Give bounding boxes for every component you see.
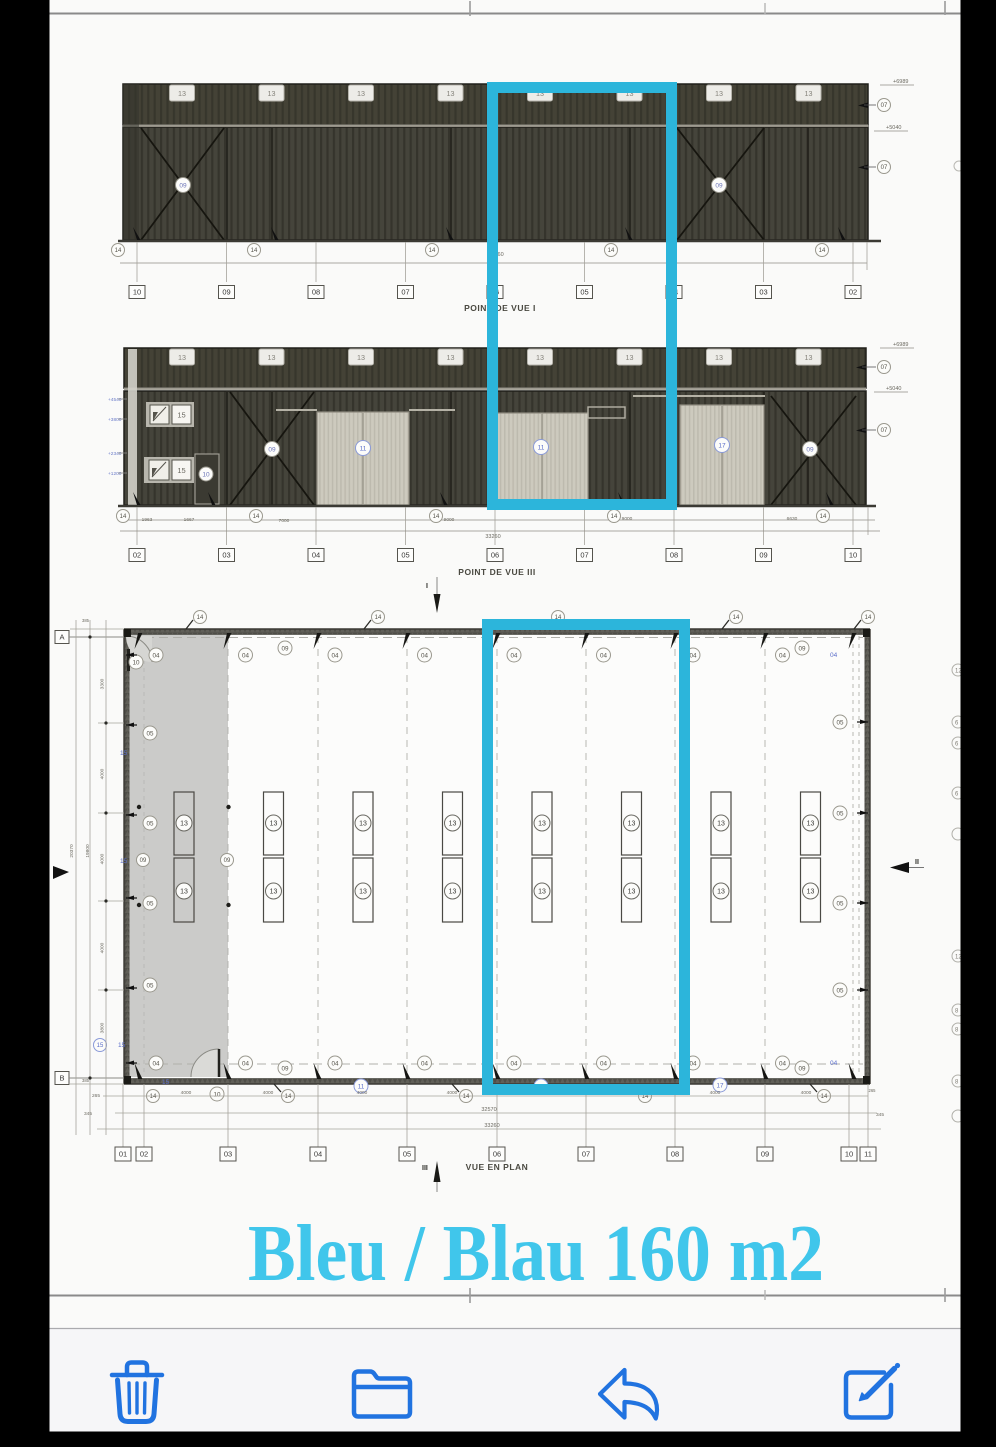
svg-text:10: 10 (132, 659, 140, 666)
svg-text:4000: 4000 (100, 942, 106, 953)
svg-text:13: 13 (270, 821, 278, 828)
svg-text:13: 13 (178, 89, 186, 98)
svg-text:13: 13 (628, 889, 636, 896)
svg-text:+3800: +3800 (108, 417, 122, 423)
svg-text:13: 13 (805, 89, 813, 98)
svg-text:04: 04 (600, 1060, 608, 1067)
svg-text:05: 05 (401, 551, 409, 560)
svg-text:15: 15 (177, 411, 185, 420)
svg-text:13: 13 (626, 353, 634, 362)
svg-text:13: 13 (357, 353, 365, 362)
svg-text:+5040: +5040 (886, 125, 901, 131)
svg-text:09: 09 (281, 1065, 289, 1072)
svg-text:10: 10 (213, 1091, 221, 1098)
svg-text:09: 09 (761, 1150, 769, 1159)
svg-text:13: 13 (180, 889, 188, 896)
svg-text:13: 13 (449, 821, 457, 828)
svg-text:265: 265 (869, 1088, 877, 1093)
svg-text:04: 04 (600, 652, 608, 659)
svg-text:A: A (59, 633, 64, 642)
svg-text:III: III (422, 1165, 428, 1172)
svg-text:02: 02 (140, 1150, 148, 1159)
svg-text:345: 345 (876, 1112, 884, 1118)
svg-text:4000: 4000 (710, 1090, 721, 1096)
svg-text:POINT DE VUE III: POINT DE VUE III (458, 567, 535, 577)
svg-text:02: 02 (133, 551, 141, 560)
svg-text:17: 17 (718, 442, 726, 449)
svg-text:11: 11 (358, 1083, 365, 1090)
svg-text:05: 05 (146, 900, 154, 907)
svg-text:06: 06 (493, 1150, 501, 1159)
svg-text:14: 14 (120, 514, 127, 520)
svg-text:385: 385 (82, 618, 90, 623)
svg-text:13: 13 (447, 353, 455, 362)
svg-text:10: 10 (133, 288, 141, 297)
svg-text:10: 10 (202, 471, 210, 478)
svg-text:13: 13 (807, 821, 815, 828)
svg-text:3300: 3300 (100, 678, 106, 689)
svg-text:+6989: +6989 (893, 79, 908, 85)
svg-text:05: 05 (146, 820, 154, 827)
svg-text:08: 08 (670, 551, 678, 560)
svg-text:13: 13 (178, 353, 186, 362)
svg-text:10: 10 (849, 551, 857, 560)
svg-text:9000: 9000 (622, 516, 633, 522)
svg-text:04: 04 (421, 652, 429, 659)
svg-text:08: 08 (671, 1150, 679, 1159)
svg-text:07: 07 (881, 103, 888, 109)
svg-text:15: 15 (97, 1043, 104, 1049)
svg-text:7000: 7000 (279, 518, 290, 524)
svg-text:14: 14 (197, 615, 204, 621)
svg-text:6630: 6630 (787, 516, 798, 522)
svg-text:13: 13 (538, 821, 546, 828)
svg-text:13: 13 (536, 353, 544, 362)
svg-text:14: 14 (820, 514, 827, 520)
svg-text:04: 04 (314, 1150, 322, 1159)
svg-text:04: 04 (510, 652, 518, 659)
svg-text:04: 04 (830, 652, 838, 659)
svg-text:07: 07 (582, 1150, 590, 1159)
svg-text:13: 13 (717, 821, 725, 828)
svg-text:33260: 33260 (485, 534, 500, 540)
svg-text:09: 09 (715, 182, 723, 189)
svg-text:Bleu / Blau 160 m2: Bleu / Blau 160 m2 (248, 1210, 824, 1298)
svg-text:03: 03 (224, 1150, 232, 1159)
svg-text:05: 05 (836, 719, 844, 726)
svg-text:II: II (915, 859, 919, 866)
svg-text:265: 265 (92, 1093, 100, 1099)
svg-text:14: 14 (865, 615, 872, 621)
svg-text:04: 04 (689, 1060, 697, 1067)
svg-text:09: 09 (806, 446, 814, 453)
svg-text:4000: 4000 (263, 1090, 274, 1096)
svg-text:13: 13 (715, 89, 723, 98)
svg-text:13: 13 (538, 889, 546, 896)
svg-text:33260: 33260 (484, 1123, 499, 1129)
svg-text:13: 13 (268, 89, 276, 98)
svg-text:14: 14 (608, 248, 615, 254)
svg-text:13: 13 (715, 353, 723, 362)
svg-text:05: 05 (146, 730, 154, 737)
svg-text:14: 14 (115, 248, 122, 254)
svg-text:345: 345 (84, 1111, 92, 1117)
svg-text:06: 06 (491, 551, 499, 560)
svg-text:09: 09 (140, 858, 147, 864)
svg-text:4000: 4000 (357, 1090, 368, 1096)
svg-text:13: 13 (270, 889, 278, 896)
svg-text:02: 02 (849, 288, 857, 297)
svg-text:9000: 9000 (444, 517, 455, 523)
svg-text:B: B (59, 1074, 64, 1083)
svg-text:I: I (426, 583, 428, 590)
svg-text:14: 14 (375, 615, 382, 621)
svg-text:14: 14 (253, 514, 260, 520)
svg-text:11: 11 (864, 1150, 872, 1159)
svg-text:20370: 20370 (69, 844, 75, 858)
svg-text:09: 09 (268, 446, 276, 453)
svg-text:+1200: +1200 (108, 471, 122, 477)
svg-text:07: 07 (881, 165, 888, 171)
svg-text:09: 09 (222, 288, 230, 297)
svg-text:04: 04 (152, 652, 160, 659)
svg-text:04: 04 (312, 551, 320, 560)
svg-text:+5040: +5040 (886, 386, 901, 392)
svg-text:05: 05 (836, 900, 844, 907)
svg-text:14: 14 (463, 1094, 470, 1100)
svg-text:05: 05 (836, 810, 844, 817)
svg-text:14: 14 (821, 1094, 828, 1100)
svg-text:09: 09 (281, 645, 289, 652)
svg-text:POINT DE VUE I: POINT DE VUE I (464, 303, 536, 313)
svg-text:15: 15 (120, 750, 128, 757)
svg-text:VUE EN PLAN: VUE EN PLAN (466, 1162, 529, 1172)
svg-text:14: 14 (251, 248, 258, 254)
svg-text:04: 04 (510, 1060, 518, 1067)
svg-text:4000: 4000 (181, 1090, 192, 1096)
svg-text:17: 17 (716, 1082, 724, 1089)
svg-text:14: 14 (611, 514, 618, 520)
svg-text:04: 04 (779, 652, 787, 659)
svg-text:13: 13 (447, 89, 455, 98)
svg-text:08: 08 (312, 288, 320, 297)
svg-text:04: 04 (331, 652, 339, 659)
svg-text:04: 04 (421, 1060, 429, 1067)
svg-text:14: 14 (433, 514, 440, 520)
svg-text:13: 13 (359, 821, 367, 828)
svg-text:14: 14 (150, 1094, 157, 1100)
svg-text:4000: 4000 (100, 768, 106, 779)
svg-text:09: 09 (179, 182, 187, 189)
svg-text:+6989: +6989 (893, 342, 908, 348)
svg-text:09: 09 (798, 1065, 806, 1072)
svg-text:07: 07 (881, 365, 888, 371)
svg-text:4000: 4000 (801, 1090, 812, 1096)
svg-text:14: 14 (285, 1094, 292, 1100)
svg-text:15: 15 (120, 858, 128, 865)
svg-text:01: 01 (119, 1150, 127, 1159)
svg-text:32570: 32570 (481, 1107, 496, 1113)
svg-text:09: 09 (798, 645, 806, 652)
svg-text:04: 04 (779, 1060, 787, 1067)
svg-text:13: 13 (805, 353, 813, 362)
svg-text:05: 05 (580, 288, 588, 297)
svg-text:05: 05 (836, 987, 844, 994)
svg-text:05: 05 (146, 982, 154, 989)
svg-text:13: 13 (807, 889, 815, 896)
svg-text:13: 13 (180, 821, 188, 828)
svg-text:14: 14 (733, 615, 740, 621)
svg-text:1963: 1963 (142, 517, 153, 523)
svg-text:07: 07 (881, 428, 888, 434)
svg-text:13: 13 (449, 889, 457, 896)
svg-text:13: 13 (359, 889, 367, 896)
svg-text:11: 11 (360, 445, 367, 452)
svg-text:04: 04 (830, 1060, 838, 1067)
svg-text:04: 04 (242, 652, 250, 659)
svg-text:14: 14 (429, 248, 436, 254)
svg-text:+2340: +2340 (108, 451, 122, 457)
svg-text:03: 03 (759, 288, 767, 297)
svg-text:15: 15 (162, 1079, 170, 1086)
svg-text:11: 11 (538, 444, 545, 451)
svg-text:09: 09 (224, 858, 231, 864)
svg-text:05: 05 (403, 1150, 411, 1159)
svg-text:4000: 4000 (100, 853, 106, 864)
svg-text:14: 14 (819, 248, 826, 254)
svg-text:10: 10 (845, 1150, 853, 1159)
svg-text:04: 04 (331, 1060, 339, 1067)
svg-text:13: 13 (357, 89, 365, 98)
svg-text:13: 13 (628, 821, 636, 828)
svg-text:15: 15 (177, 466, 185, 475)
svg-text:19800: 19800 (85, 844, 91, 858)
svg-text:13: 13 (717, 889, 725, 896)
svg-text:14: 14 (642, 1094, 649, 1100)
svg-text:1667: 1667 (184, 517, 195, 523)
svg-text:4000: 4000 (447, 1090, 458, 1096)
svg-text:15: 15 (118, 1042, 126, 1049)
svg-text:09: 09 (759, 551, 767, 560)
svg-text:07: 07 (401, 288, 409, 297)
svg-text:04: 04 (689, 652, 697, 659)
svg-text:04: 04 (152, 1060, 160, 1067)
svg-text:+4540: +4540 (108, 397, 122, 403)
svg-text:3800: 3800 (100, 1022, 106, 1033)
svg-text:07: 07 (580, 551, 588, 560)
svg-text:13: 13 (268, 353, 276, 362)
svg-text:04: 04 (242, 1060, 250, 1067)
svg-text:03: 03 (222, 551, 230, 560)
svg-text:385: 385 (82, 1078, 90, 1083)
